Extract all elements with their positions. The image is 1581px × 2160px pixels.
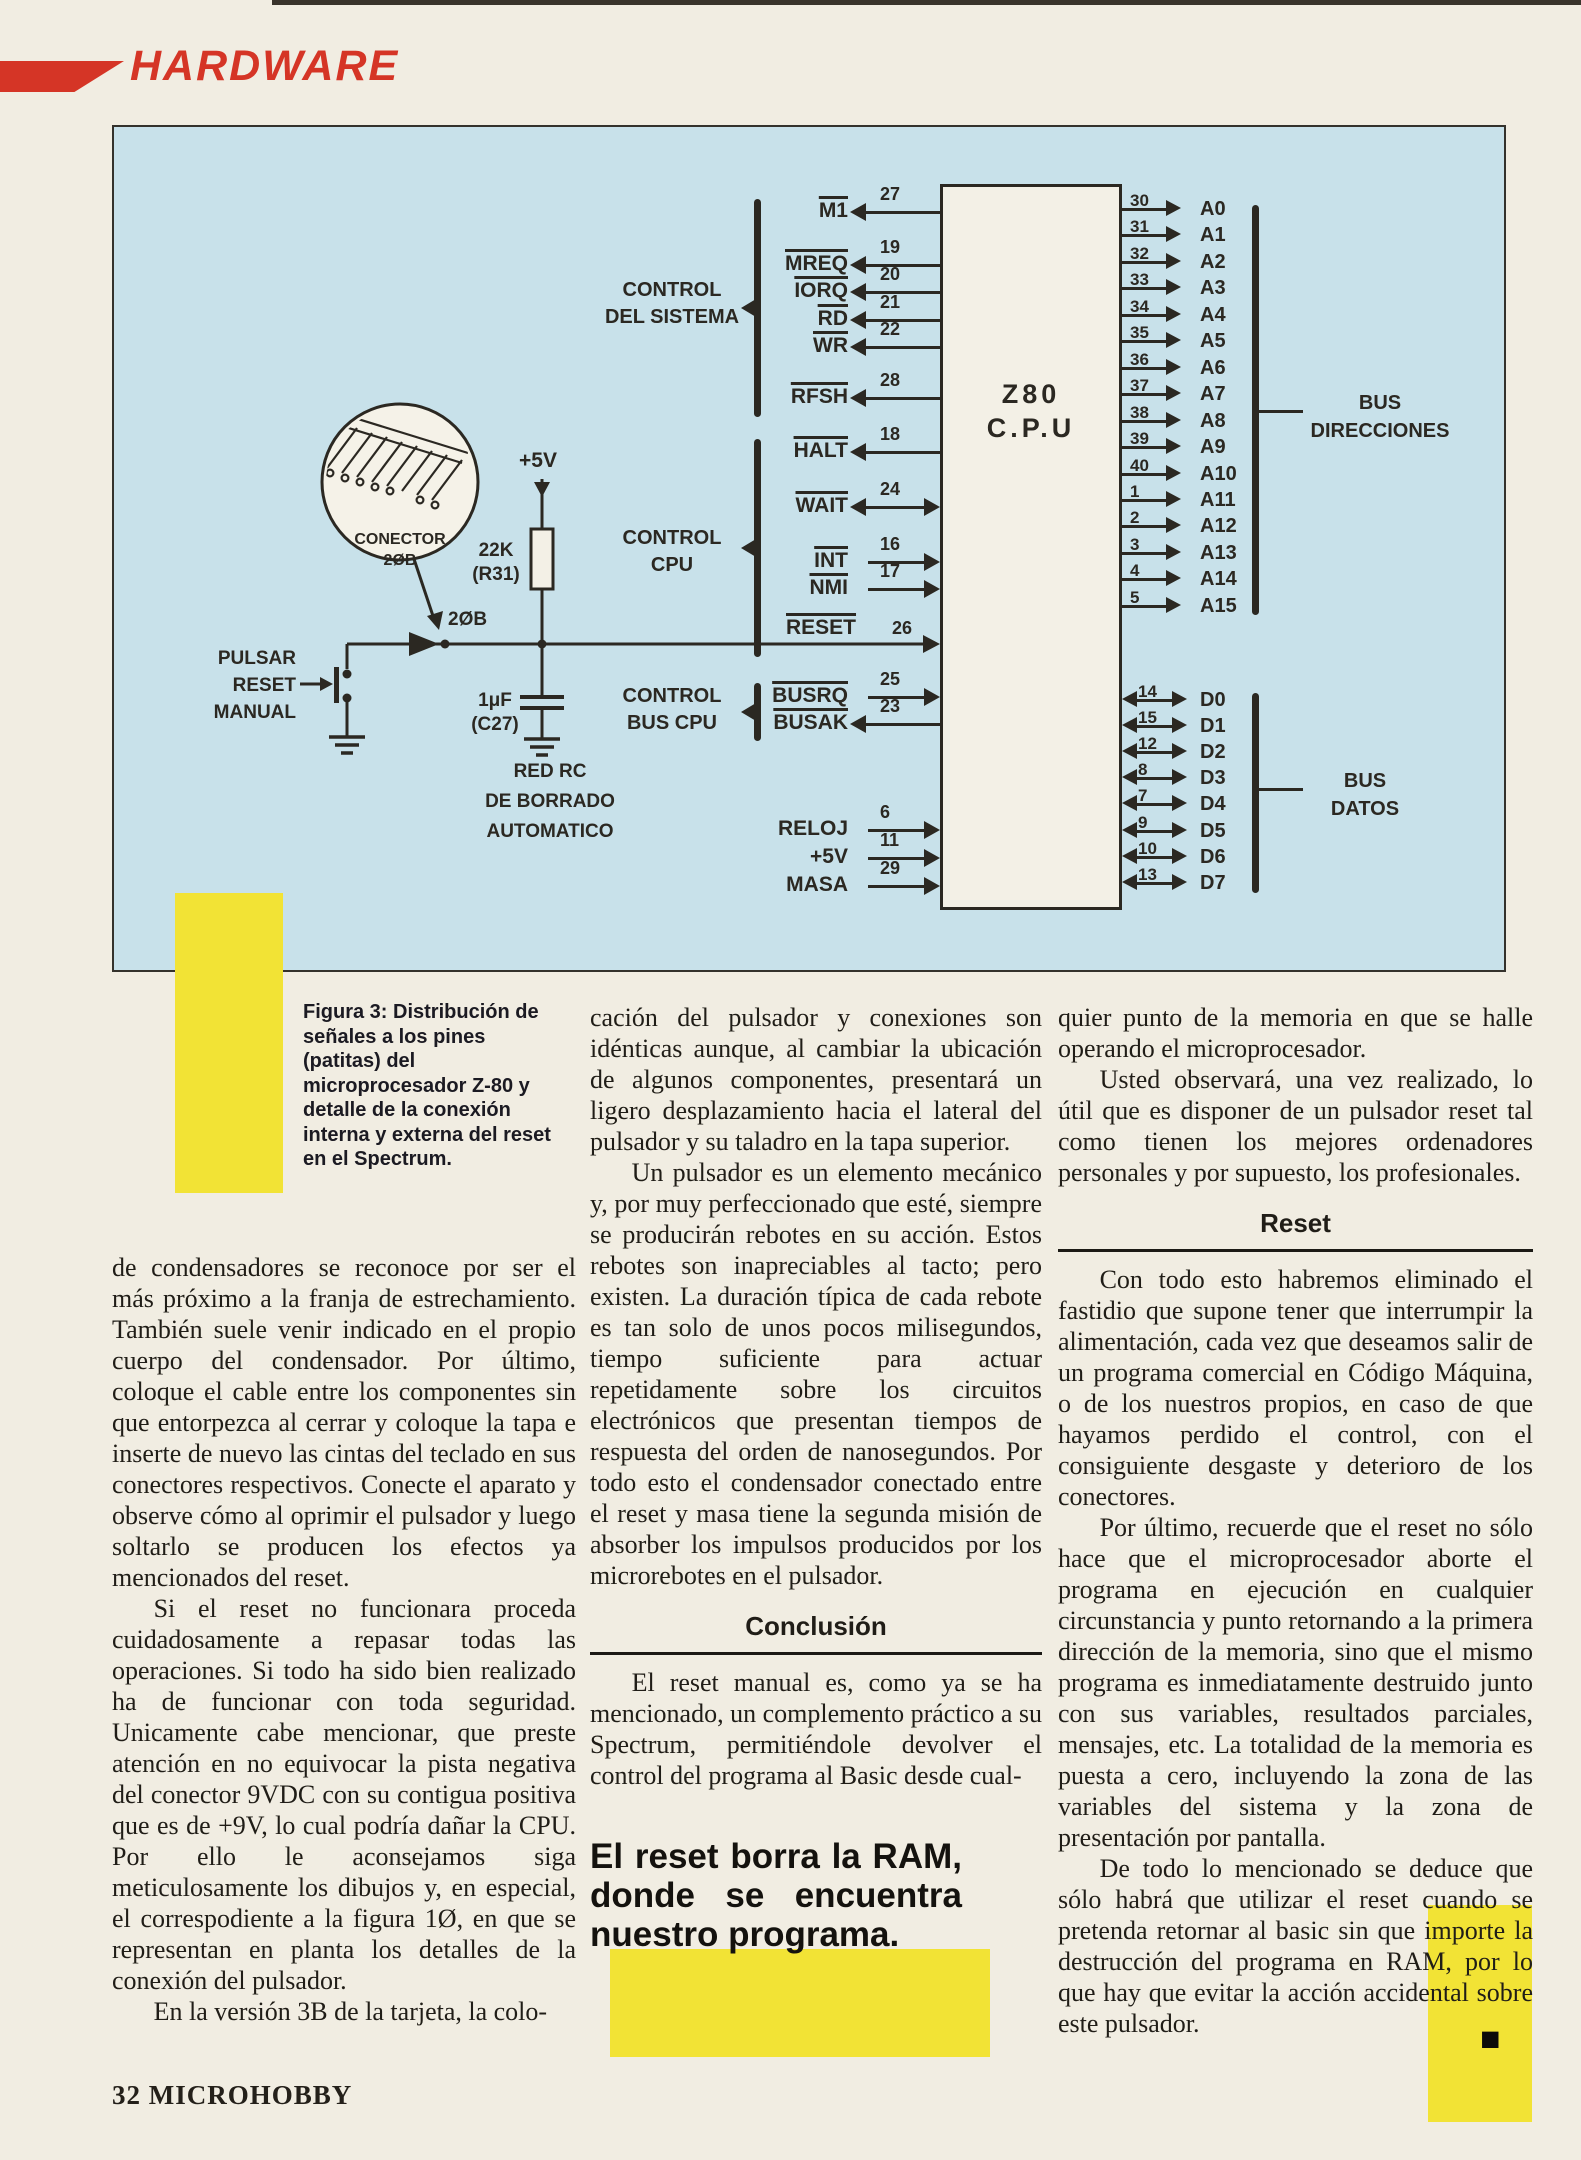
pin-number: 24: [880, 480, 900, 498]
arrow-out-icon: [850, 498, 866, 516]
switch-actuator: [334, 667, 339, 703]
data-pin-row: 13 D7: [1122, 870, 1312, 896]
pull-quote: El reset borra la RAM, donde se encuentr…: [590, 1837, 990, 1954]
pin-number: 8: [1138, 761, 1147, 778]
address-pin-row: 5 A15: [1122, 593, 1312, 619]
rc-network-label: RED RC DE BORRADO AUTOMATICO: [480, 757, 620, 847]
cpu-control-brace-tick: [741, 539, 756, 557]
signal-label: WR: [813, 335, 848, 356]
pin-number: 17: [880, 562, 900, 580]
pin-number: 13: [1138, 866, 1157, 883]
data-line-label: D3: [1200, 768, 1226, 788]
supply-label: +5V: [519, 449, 557, 473]
subheading-conclusion: Conclusión: [590, 1603, 1042, 1655]
pin-number: 10: [1138, 840, 1157, 857]
pulsar-arrowhead: [320, 677, 333, 691]
data-line-label: D4: [1200, 794, 1226, 814]
signal-label: NMI: [810, 577, 849, 598]
address-pin-row: 33 A3: [1122, 275, 1312, 301]
data-line-label: D6: [1200, 847, 1226, 867]
address-line-label: A7: [1200, 384, 1226, 404]
address-line-label: A11: [1200, 490, 1236, 510]
address-pin-row: 31 A1: [1122, 222, 1312, 248]
data-line-label: D2: [1200, 742, 1226, 762]
page-footer: 32 MICROHOBBY: [112, 2080, 352, 2111]
capacitor-label: 1μF (C27): [464, 689, 526, 737]
pull-quote-text: El reset borra la RAM, donde se encuentr…: [590, 1837, 962, 1954]
magazine-page: HARDWARE: [0, 0, 1581, 2160]
address-line-label: A0: [1200, 199, 1226, 219]
signal-label: INT: [814, 550, 848, 571]
reset-signal-label: RESET: [786, 616, 856, 640]
arrow-right-icon: [1172, 717, 1187, 733]
capacitor-ref: (C27): [464, 713, 526, 737]
resistor-ref: (R31): [464, 563, 528, 587]
resistor-r31: [531, 529, 553, 589]
cpu-label: Z80 C.P.U: [943, 377, 1119, 445]
pin-number: 38: [1130, 404, 1149, 421]
address-pin-row: 1 A11: [1122, 487, 1312, 513]
rc-network-label-line: AUTOMATICO: [480, 817, 620, 847]
resistor-label: 22K (R31): [464, 539, 528, 587]
paragraph: quier punto de la memoria en que se hall…: [1058, 1002, 1533, 1064]
paragraph: Con todo esto habremos eliminado el fast…: [1058, 1264, 1533, 1512]
pin-number: 35: [1130, 324, 1149, 341]
arrow-out-icon: [1166, 200, 1181, 216]
pin-number: 7: [1138, 787, 1147, 804]
arrow-out-icon: [850, 338, 866, 356]
address-line-label: A6: [1200, 358, 1226, 378]
group-label-line: CONTROL: [602, 525, 742, 552]
signal-label: +5V: [810, 846, 848, 867]
arrow-right-icon: [1172, 691, 1187, 707]
arrow-out-icon: [1166, 279, 1181, 295]
arrow-out-icon: [850, 311, 866, 329]
push-reset-label-line: MANUAL: [204, 699, 296, 726]
group-label-line: BUS CPU: [602, 710, 742, 737]
subheading-reset: Reset: [1058, 1200, 1533, 1252]
pin-number: 1: [1130, 483, 1139, 500]
data-bus-brace-tick: [1259, 788, 1303, 791]
pin-number: 2: [1130, 509, 1139, 526]
signal-label: BUSAK: [773, 712, 848, 733]
address-line-label: A9: [1200, 437, 1226, 457]
arrow-right-icon: [1172, 795, 1187, 811]
address-line-label: A13: [1200, 543, 1237, 563]
arrow-out-icon: [1166, 517, 1181, 533]
page-top-edge: [272, 0, 1581, 5]
address-line-label: A10: [1200, 464, 1237, 484]
z80-cpu-box: Z80 C.P.U: [940, 184, 1122, 910]
signal-label: HALT: [794, 440, 848, 461]
bus-label-line: BUS: [1310, 389, 1450, 417]
arrow-out-icon: [1166, 412, 1181, 428]
address-line-label: A3: [1200, 278, 1226, 298]
arrow-out-icon: [1166, 465, 1181, 481]
address-pin-row: 34 A4: [1122, 302, 1312, 328]
group-label-line: CONTROL: [602, 683, 742, 710]
pin-number: 29: [880, 859, 900, 877]
paragraph: Si el reset no funcionara proceda cuidad…: [112, 1593, 576, 1996]
junction-dot-20b: [441, 640, 450, 649]
connector-label-line: 2ØB: [328, 550, 472, 571]
pin-number: 40: [1130, 457, 1149, 474]
connector-label-line: CONECTOR: [328, 529, 472, 550]
pin-number: 12: [1138, 735, 1157, 752]
pin-number: 25: [880, 670, 900, 688]
connector-label: CONECTOR 2ØB: [328, 529, 472, 571]
paragraph: Por último, recuerde que el reset no sól…: [1058, 1512, 1533, 1853]
arrow-in-icon: [924, 688, 940, 706]
pin-number: 20: [880, 265, 900, 283]
pin-number: 11: [880, 831, 899, 849]
arrow-out-icon: [1166, 544, 1181, 560]
signal-label: BUSRQ: [772, 685, 848, 706]
pin-number: 22: [880, 320, 900, 338]
address-bus-brace: [1252, 205, 1259, 615]
arrow-right-icon: [1172, 769, 1187, 785]
arrow-out-icon: [1166, 597, 1181, 613]
group-label-line: DEL SISTEMA: [602, 304, 742, 331]
signal-label: IORQ: [794, 280, 848, 301]
signal-label: RELOJ: [778, 818, 848, 839]
ground-symbol-switch: [329, 737, 365, 753]
capacitor-value: 1μF: [464, 689, 526, 713]
arrow-out-icon: [850, 715, 866, 733]
rc-network-label-line: RED RC: [480, 757, 620, 787]
pin-number: 39: [1130, 430, 1149, 447]
arrow-in-icon: [924, 498, 940, 516]
address-bus-label: BUS DIRECCIONES: [1310, 389, 1450, 445]
arrow-in-icon: [924, 821, 940, 839]
arrow-out-icon: [850, 283, 866, 301]
address-bus-rows: 30 A0 31 A1 32 A2 33 A3 34 A4 35: [1122, 196, 1312, 636]
section-title: HARDWARE: [130, 42, 399, 91]
pin-number: 9: [1138, 814, 1147, 831]
address-pin-row: 40 A10: [1122, 461, 1312, 487]
address-pin-row: 4 A14: [1122, 566, 1312, 592]
junction-label: 2ØB: [448, 609, 487, 631]
address-line-label: A5: [1200, 331, 1226, 351]
address-line-label: A2: [1200, 252, 1226, 272]
bus-label-line: DIRECCIONES: [1310, 417, 1450, 445]
system-control-label: CONTROL DEL SISTEMA: [602, 277, 742, 331]
figure-3-circuit-diagram: Z80 C.P.U M127 MREQ19 IORQ20 RD21 WR22 R…: [112, 125, 1506, 972]
pin-number: 34: [1130, 298, 1149, 315]
paragraph: Usted observará, una vez realizado, lo ú…: [1058, 1064, 1533, 1188]
arrow-out-icon: [1166, 438, 1181, 454]
paragraph: cación del pulsador y conexiones son idé…: [590, 1002, 1042, 1157]
data-line-label: D0: [1200, 690, 1226, 710]
section-header-wedge: [0, 61, 124, 92]
arrow-out-icon: [1166, 306, 1181, 322]
system-control-brace-tick: [741, 299, 756, 317]
address-pin-row: 39 A9: [1122, 434, 1312, 460]
address-line-label: A15: [1200, 596, 1237, 616]
ground-symbol-capacitor: [524, 739, 560, 755]
address-line-label: A12: [1200, 516, 1237, 536]
address-pin-row: 32 A2: [1122, 249, 1312, 275]
arrow-out-icon: [850, 389, 866, 407]
address-line-label: A1: [1200, 225, 1226, 245]
address-line-label: A8: [1200, 411, 1226, 431]
pin-number: 23: [880, 697, 900, 715]
address-pin-row: 37 A7: [1122, 381, 1312, 407]
bus-control-brace-tick: [741, 703, 756, 721]
pin-number: 14: [1138, 683, 1157, 700]
data-pin-row: 12 D2: [1122, 739, 1312, 765]
pin-number: 16: [880, 535, 900, 553]
switch-contact-top: [343, 670, 352, 679]
yellow-highlight-bar: [175, 893, 283, 1193]
text-column-1: de condensadores se reconoce por ser el …: [112, 1252, 576, 2027]
data-bus-label: BUS DATOS: [1310, 767, 1420, 823]
cpu-label-line2: C.P.U: [943, 411, 1119, 445]
magazine-name: MICROHOBBY: [149, 2080, 353, 2110]
pin-number: 21: [880, 293, 900, 311]
signal-label: WAIT: [796, 495, 849, 516]
bus-label-line: BUS: [1310, 767, 1420, 795]
pin-number: 36: [1130, 351, 1149, 368]
push-reset-label-line: PULSAR: [204, 645, 296, 672]
pin-number: 30: [1130, 192, 1149, 209]
arrow-in-icon: [924, 877, 940, 895]
group-label-line: CPU: [602, 552, 742, 579]
pin-number: 28: [880, 371, 900, 389]
data-bus-rows: 14 D0 15 D1 12 D2 8 D3 7: [1122, 687, 1312, 917]
data-bus-brace: [1252, 693, 1259, 893]
switch-contact-bottom: [343, 694, 352, 703]
pin-number: 31: [1130, 218, 1149, 235]
text-column-2: cación del pulsador y conexiones son idé…: [590, 1002, 1042, 1954]
paragraph: de condensadores se reconoce por ser el …: [112, 1252, 576, 1593]
arrow-out-icon: [850, 256, 866, 274]
bus-label-line: DATOS: [1310, 795, 1420, 823]
arrow-out-icon: [1166, 385, 1181, 401]
pin-number: 37: [1130, 377, 1149, 394]
data-pin-row: 7 D4: [1122, 791, 1312, 817]
address-bus-brace-tick: [1259, 410, 1303, 413]
arrow-right-icon: [1172, 743, 1187, 759]
arrow-right-icon: [1172, 874, 1187, 890]
reset-pin-number: 26: [892, 618, 912, 639]
signal-label: RD: [818, 308, 848, 329]
pin-number: 32: [1130, 245, 1149, 262]
reset-pin-arrowhead: [923, 635, 940, 653]
data-line-label: D1: [1200, 716, 1226, 736]
pin-number: 4: [1130, 562, 1139, 579]
signal-label: M1: [819, 200, 848, 221]
address-pin-row: 36 A6: [1122, 355, 1312, 381]
arrow-out-icon: [1166, 359, 1181, 375]
pin-number: 18: [880, 425, 900, 443]
figure-caption: Figura 3: Distribución de señales a los …: [303, 1000, 553, 1172]
bus-control-label: CONTROL BUS CPU: [602, 683, 742, 737]
text-column-3: quier punto de la memoria en que se hall…: [1058, 1002, 1533, 2039]
address-pin-row: 30 A0: [1122, 196, 1312, 222]
arrow-in-icon: [924, 580, 940, 598]
pin-number: 15: [1138, 709, 1157, 726]
pull-quote-highlight: [610, 1949, 990, 2057]
page-number: 32: [112, 2080, 141, 2110]
paragraph: El reset manual es, como ya se ha mencio…: [590, 1667, 1042, 1791]
cpu-label-line1: Z80: [943, 377, 1119, 411]
arrow-out-icon: [850, 443, 866, 461]
arrow-in-icon: [924, 553, 940, 571]
address-pin-row: 35 A5: [1122, 328, 1312, 354]
signal-label: RFSH: [791, 386, 848, 407]
data-line-label: D7: [1200, 873, 1226, 893]
arrow-in-icon: [924, 849, 940, 867]
arrow-out-icon: [1166, 226, 1181, 242]
push-reset-label-line: RESET: [204, 672, 296, 699]
address-pin-row: 2 A12: [1122, 513, 1312, 539]
arrow-out-icon: [850, 203, 866, 221]
rc-network-label-line: DE BORRADO: [480, 787, 620, 817]
address-pin-row: 3 A13: [1122, 540, 1312, 566]
arrow-right-icon: [1172, 822, 1187, 838]
signal-label: MREQ: [785, 253, 848, 274]
pin-number: 3: [1130, 536, 1139, 553]
arrow-out-icon: [1166, 570, 1181, 586]
paragraph: De todo lo mencionado se deduce que sólo…: [1058, 1853, 1533, 2039]
arrow-out-icon: [1166, 491, 1181, 507]
pin-number: 6: [880, 803, 890, 821]
arrow-out-icon: [1166, 332, 1181, 348]
resistor-value: 22K: [464, 539, 528, 563]
arrow-right-icon: [1172, 848, 1187, 864]
pin-number: 19: [880, 238, 900, 256]
paragraph: En la versión 3B de la tarjeta, la colo-: [112, 1996, 576, 2027]
push-reset-label: PULSAR RESET MANUAL: [204, 645, 296, 726]
connector-pointer-arrowhead: [427, 611, 443, 630]
paragraph: Un pulsador es un elemento mecánico y, p…: [590, 1157, 1042, 1591]
reset-wire-arrowhead: [409, 632, 439, 656]
pin-number: 33: [1130, 271, 1149, 288]
cpu-control-label: CONTROL CPU: [602, 525, 742, 579]
address-line-label: A4: [1200, 305, 1226, 325]
arrow-out-icon: [1166, 253, 1181, 269]
end-of-article-mark: ■: [1480, 2022, 1501, 2056]
group-label-line: CONTROL: [602, 277, 742, 304]
address-line-label: A14: [1200, 569, 1237, 589]
pin-number: 5: [1130, 589, 1139, 606]
data-line-label: D5: [1200, 821, 1226, 841]
signal-label: MASA: [786, 874, 848, 895]
pin-number: 27: [880, 185, 900, 203]
